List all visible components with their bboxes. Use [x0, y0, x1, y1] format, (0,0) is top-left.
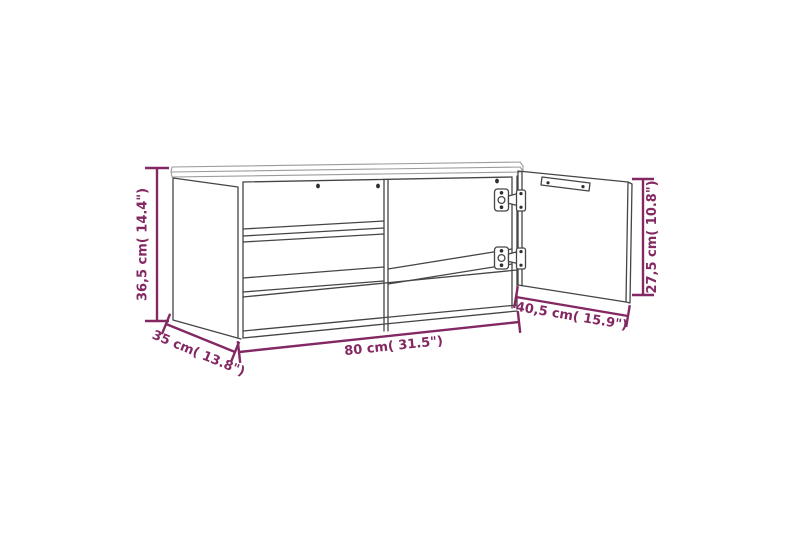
diagram-canvas: 36,5 cm( 14.4") 35 cm( 13.8") 80 cm( 31.…	[0, 0, 800, 533]
hinge-arm	[509, 252, 518, 264]
compartment-floors	[243, 249, 512, 292]
hinge-top	[495, 189, 526, 211]
dimension-width: 80 cm( 31.5")	[238, 311, 520, 363]
product-dimension-diagram: 36,5 cm( 14.4") 35 cm( 13.8") 80 cm( 31.…	[0, 0, 800, 533]
hinge-screw	[500, 263, 504, 267]
door-edges	[518, 171, 632, 303]
hinge-screw	[500, 191, 504, 195]
height-dimension-label: 36,5 cm( 14.4")	[136, 188, 151, 301]
shelf-edges	[243, 221, 384, 242]
handle-screw-right	[581, 185, 584, 188]
hinge-screw	[500, 249, 504, 253]
screw-hole	[316, 184, 320, 189]
dimension-annotations: 36,5 cm( 14.4") 35 cm( 13.8") 80 cm( 31.…	[136, 168, 661, 380]
hinge-arm	[509, 194, 518, 206]
hinge-screw	[519, 250, 522, 253]
handle-screw-left	[546, 181, 549, 184]
carcass-frame	[243, 176, 517, 331]
hinge-screw	[519, 264, 522, 267]
open-door	[518, 171, 632, 303]
screw-hole	[495, 179, 499, 184]
hinge-bottom	[495, 247, 526, 269]
dimension-height: 36,5 cm( 14.4")	[136, 168, 170, 321]
width-dimension-label: 80 cm( 31.5")	[344, 334, 444, 359]
opening-top-edge	[243, 177, 512, 182]
hinge-screw	[519, 192, 522, 195]
left-side-panel	[173, 178, 243, 339]
door-handle	[541, 177, 590, 191]
left-side-panel-edges	[173, 178, 243, 339]
top-panel-edges	[171, 162, 523, 177]
dimension-door-height: 27,5 cm( 10.8")	[632, 179, 660, 295]
middle-divider	[384, 180, 388, 331]
door-height-dimension-label: 27,5 cm( 10.8")	[645, 180, 660, 293]
dimension-depth: 35 cm( 13.8")	[150, 314, 247, 380]
right-floor-edges	[388, 249, 512, 284]
door-width-dimension-label: 40,5 cm( 15.9")	[515, 300, 629, 334]
top-panel	[171, 162, 523, 177]
hinge-screw	[500, 205, 504, 209]
depth-dimension-label: 35 cm( 13.8")	[150, 328, 247, 380]
screw-hole	[376, 184, 380, 189]
left-floor-edges	[243, 267, 384, 292]
left-compartment-shelf	[243, 221, 384, 242]
hinge-screw	[519, 206, 522, 209]
